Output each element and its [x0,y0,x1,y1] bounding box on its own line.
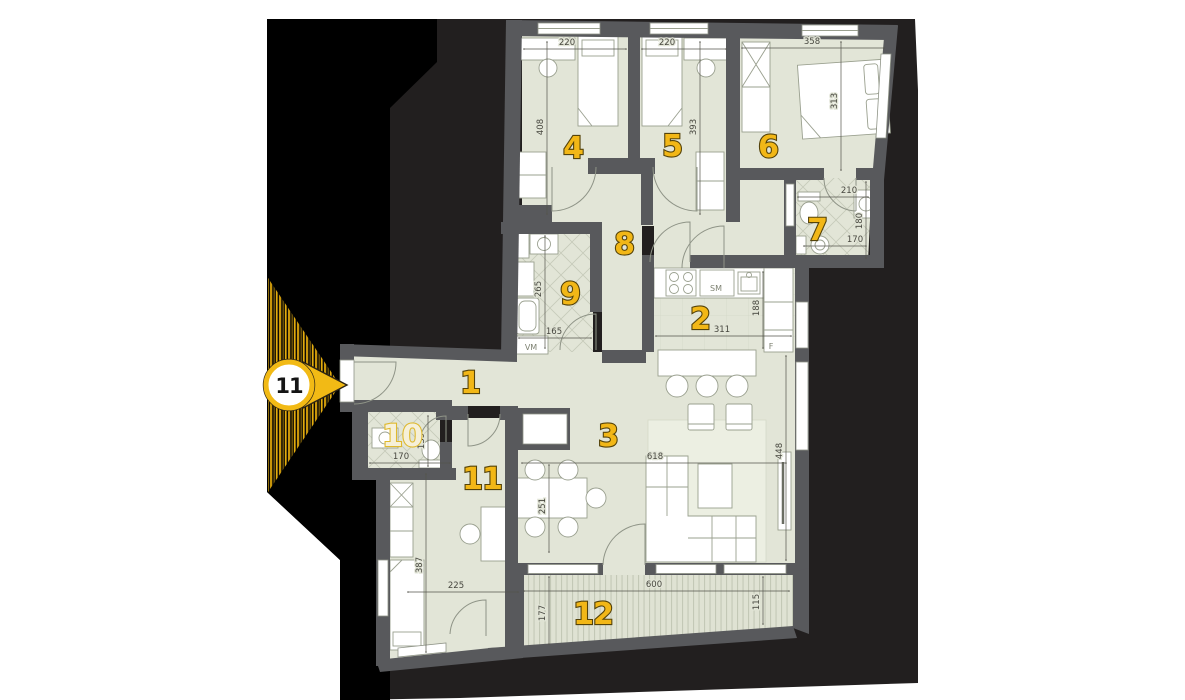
room-number-2[interactable]: 2 [690,302,710,337]
wall-room6-bottom [740,168,790,180]
terrace-door-opening [603,563,645,575]
room-number-1[interactable]: 1 [460,366,480,401]
dim-room6-depth: 313 [830,93,840,109]
wall-entrance-jamb-top [340,344,354,362]
chair [696,375,718,397]
chair [525,517,545,537]
wall-terrace-left-pier [505,563,524,651]
room-number-10[interactable]: 10 [382,419,422,454]
chair [558,517,578,537]
dim-terrace-left-depth: 177 [538,605,548,621]
chair [726,375,748,397]
dim-kitchen-depth: 188 [752,300,762,316]
armchair [726,404,752,430]
dim-kitchen-width: 311 [714,325,730,335]
wall-room11-right [505,408,518,568]
room-number-9[interactable]: 9 [560,277,580,312]
closet-niche [523,414,567,444]
dim-terrace-right-depth: 115 [752,594,762,610]
dim-room7-depth: 180 [855,213,865,229]
window [796,362,808,450]
wardrobe [390,483,413,557]
dining-table [517,478,587,518]
dim-room6-width: 358 [804,37,820,47]
room-number-6[interactable]: 6 [758,130,778,165]
chair [586,488,606,508]
marker-label: 11 [275,374,303,398]
wall-room4-bottom [506,205,552,222]
cabinet [516,262,534,296]
dim-terrace-width: 600 [646,580,662,590]
wall-room10-right [440,442,452,470]
room-number-8[interactable]: 8 [614,227,634,262]
wall-kitchen-top [690,255,795,268]
toilet-tank [419,460,443,468]
tall-cabinet-fridge [764,268,793,352]
wall-terrace-right [793,568,809,634]
sliding-window [528,565,598,574]
cabinet [796,236,806,254]
washing-machine-label: VM [525,343,537,352]
chair [666,375,688,397]
desk [481,507,506,561]
dim-living-depth: 448 [775,443,785,459]
dim-room4-depth: 408 [536,119,546,135]
dim-living-width: 618 [647,452,663,462]
dim-room5-depth: 393 [689,119,699,135]
dim-room5-width: 220 [659,38,675,48]
kitchen-table [658,350,756,376]
room-number-5[interactable]: 5 [662,129,682,164]
bath7-niche [786,184,794,226]
room-number-4[interactable]: 4 [563,131,583,166]
floorplan-canvas: 220 408 220 393 358 313 210 180 170 265 … [0,0,1185,700]
wall-hall8-stub [641,158,653,225]
wall-partition-5-6 [726,36,740,222]
wall-corridor-a [436,406,468,420]
room-8-floor-d [740,178,784,262]
toilet-tank [798,192,820,201]
wall-room9-right [590,222,602,312]
dim-room11-depth: 387 [415,557,425,573]
wall-bath7-top-a [786,168,824,180]
pillow [393,632,421,646]
window [378,560,388,616]
dim-room7-width: 210 [841,186,857,196]
wall-partition-4-5 [628,36,640,162]
sliding-window [724,565,786,574]
dim-dining-width: 251 [538,498,548,514]
armchair [688,404,714,430]
dim-room7-fixture: 170 [847,235,863,245]
pillow [582,40,614,56]
desk-chair [460,524,480,544]
room-number-3[interactable]: 3 [598,419,618,454]
wall-right-bath [870,178,884,265]
dim-room9-width: 165 [546,327,562,337]
room-number-7[interactable]: 7 [807,213,827,248]
coffee-table [698,464,732,508]
room-number-12[interactable]: 12 [573,597,613,632]
wall-corridor-living [602,350,646,363]
wall-bath7-top-b [856,168,882,180]
wall-room10-left [352,402,368,472]
tv-stand [778,452,791,530]
dishwasher-label: SM [710,284,722,293]
dim-room4-width: 220 [559,38,575,48]
fridge-label: F [769,342,774,351]
entrance-opening [340,360,354,402]
dim-room11-width: 225 [448,581,464,591]
room-number-11[interactable]: 11 [462,462,502,497]
dim-room9-depth: 265 [534,281,544,297]
floorplan-viewer: 220 408 220 393 358 313 210 180 170 265 … [0,0,1185,700]
sliding-window [656,565,716,574]
wall-room9-top [501,222,595,234]
window [796,302,808,348]
wall-kitchen-left [642,255,654,352]
desk-chair [539,59,557,77]
bathroom-sink [530,234,558,254]
